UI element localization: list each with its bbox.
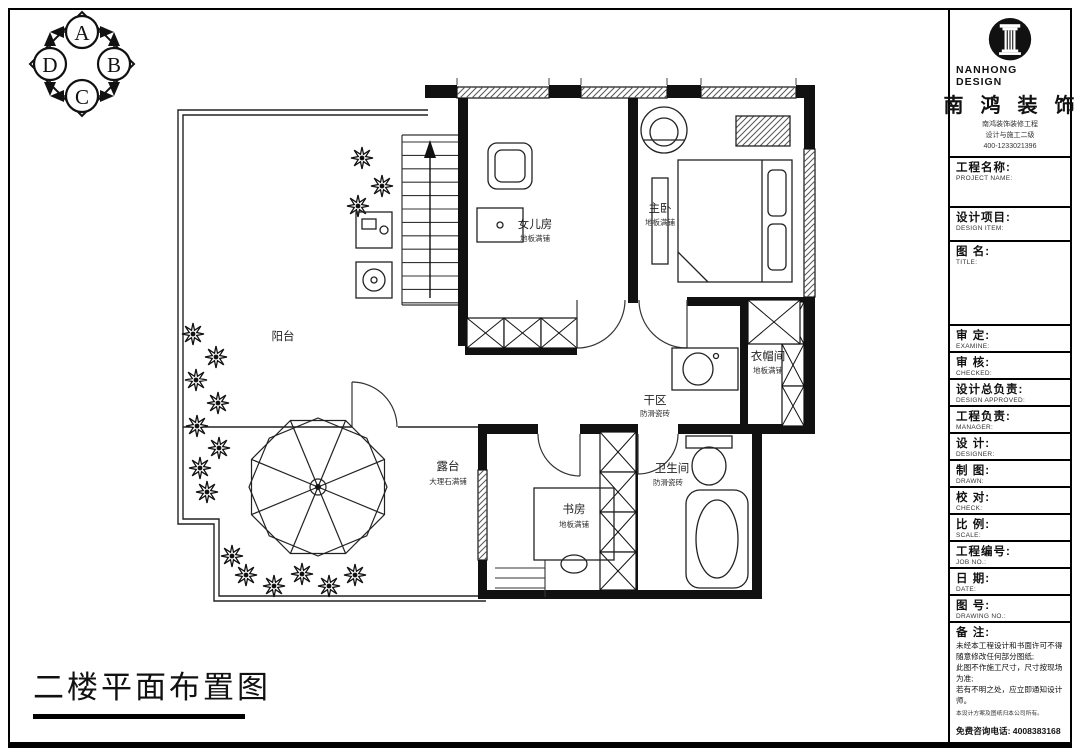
field-project-name: 工程名称: PROJECT NAME: [950,158,1070,208]
field-manager: 工程负责: MANAGER: [950,407,1070,434]
sheet-title: 二楼平面布置图 [33,662,271,707]
title-block: NANHONG DESIGN 南 鸿 装 饰 南鸿装饰装修工程 设计与施工二级 … [948,10,1070,742]
bathtub [686,490,748,588]
room-label-dry-area: 干区 [644,395,667,407]
field-checked: 审 核: CHECKED: [950,353,1070,380]
room-sub-terrace: 大理石满铺 [429,476,467,486]
room-sub-dry-area: 防滑瓷砖 [640,408,670,418]
brand-name-cn: 南 鸿 装 饰 [944,89,1080,118]
compass-n-label: A [74,21,90,45]
field-design-approved: 设计总负责: DESIGN APPROVED: [950,380,1070,407]
brand-tagline-3: 400-1233021396 [982,142,1038,153]
brand-tagline-1: 南鸿装饰装修工程 [982,120,1038,131]
field-drawn: 制 图: DRAWN: [950,461,1070,488]
sheet-title-block: 二楼平面布置图 [33,662,271,719]
field-check: 校 对: CHECK: [950,488,1070,515]
field-designer: 设 计: DESIGNER: [950,434,1070,461]
room-label-master-bedroom: 主卧 [649,202,672,215]
terrace-railing [178,110,486,601]
vanity-counter [672,348,738,390]
field-scale: 比 例: SCALE: [950,515,1070,542]
notes-title: 备 注: [956,626,1064,640]
room-sub-cloakroom: 地板满铺 [753,365,783,375]
compass-e-label: B [107,53,121,77]
patio-umbrella [249,418,387,556]
drawing-sheet: A B C D [0,0,1080,754]
room-label-balcony: 阳台 [272,329,295,343]
room-label-bathroom: 卫生间 [655,461,690,475]
room-sub-study: 地板满铺 [559,519,589,529]
tv-cabinet [736,116,790,146]
room-label-daughter-room: 女儿房 [518,217,553,231]
compass-s-label: C [75,85,89,109]
brand-area: NANHONG DESIGN 南 鸿 装 饰 南鸿装饰装修工程 设计与施工二级 … [950,10,1070,158]
field-drawing-title: 图 名: TITLE: [950,242,1070,326]
compass-w-label: D [42,53,57,77]
hotline: 免费咨询电话: 4008383168 [956,725,1064,739]
toilet [686,436,732,485]
dimension-ticks [457,78,796,85]
brand-tagline-2: 设计与施工二级 [982,131,1038,142]
room-sub-master-bedroom: 地板满铺 [645,217,675,227]
floor-plan: 女儿房 地板满铺 主卧 地板满铺 阳台 衣帽间 地板满铺 干区 防滑瓷砖 卫生间… [160,75,850,620]
notes-area: 备 注: 未经本工程设计和书面许可不得 随意修改任何部分图纸; 此图不作施工尺寸… [950,623,1070,742]
balcony-appliances [356,212,392,298]
room-label-cloakroom: 衣帽间 [751,349,786,363]
armchair [641,107,687,153]
field-examine: 审 定: EXAMINE: [950,326,1070,353]
room-sub-daughter-room: 地板满铺 [520,233,550,243]
room-label-study: 书房 [563,503,586,516]
compass-rose: A B C D [20,6,142,122]
room-label-terrace: 露台 [437,459,460,473]
brand-name-en: NANHONG DESIGN [956,64,1064,88]
field-design-item: 设计项目: DESIGN ITEM: [950,208,1070,242]
field-drawing-no: 图 号: DRAWING NO.: [950,596,1070,623]
field-date: 日 期: DATE: [950,569,1070,596]
sheet-title-underline [33,714,245,719]
nanhong-logo-icon [978,16,1042,62]
room-sub-bathroom: 防滑瓷砖 [653,477,683,487]
stair-direction-arrow-icon [424,140,436,298]
field-job-no: 工程编号: JOB NO.: [950,542,1070,569]
